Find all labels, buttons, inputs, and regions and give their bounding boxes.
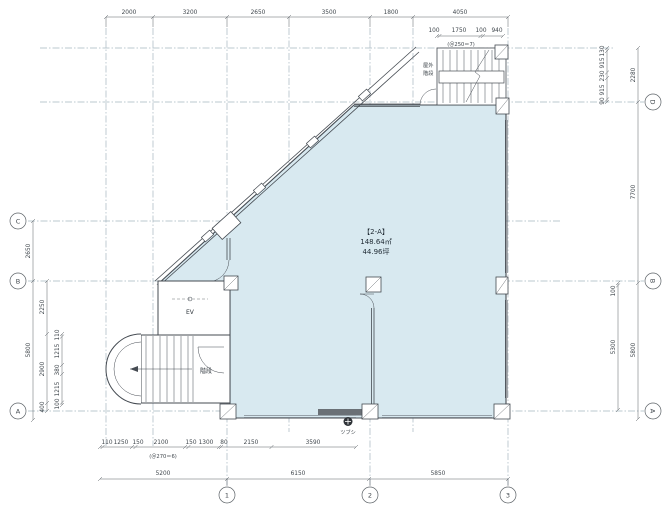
dim-left-mid [45,279,49,413]
dim-bottom-sub-4: 150 [185,440,196,446]
dim-right-inner-0: 100 [611,285,617,296]
axis-left-b-label: B [16,278,20,286]
floor-plan-svg: 【2-A】 148.64㎡ 44.96坪 EV 階段 屋外 階段 (＠250＝7… [0,0,669,514]
dim-left-mid-0: 2250 [40,299,46,314]
dim-top-sub-3: 940 [491,28,502,34]
dim-bottom-sub-8: 3590 [306,440,321,446]
dim-bottom-sub-7: 2150 [244,440,259,446]
stair-landing [439,71,504,83]
dim-bottom-sub-6: 80 [220,440,228,446]
dim-top-sub-2: 100 [475,28,486,34]
axis-bottom-2-label: 2 [368,492,372,500]
axis-right-d-label: D [649,99,657,104]
dim-right-outer-2: 5800 [631,342,637,357]
dim-bottom-sub-3: 2100 [154,440,169,446]
dim-left-small-0: 110 [55,329,61,340]
dim-top-main [104,15,510,27]
dim-left-mid-1: 2900 [40,361,46,376]
axis-left-a-label: A [16,408,21,416]
axis-right-d: D [645,94,661,110]
dim-top-2: 2650 [251,10,266,16]
axis-bottom-3: 3 [500,487,516,503]
dim-left-mid-2: 400 [40,401,46,412]
room-area-tsubo: 44.96坪 [362,248,389,256]
dim-right-outer-1: 7700 [631,184,637,199]
stairs-label: 階段 [200,367,212,375]
dim-left-small-2: 380 [55,364,61,375]
dim-bottom-sub-0: 110 [101,440,112,446]
dim-left-outer-1: 5800 [26,342,32,357]
dim-bottom-main-0: 5200 [156,471,171,477]
axis-right-b: B [645,273,661,289]
outdoor-stairs-label-1: 屋外 [423,61,433,69]
axis-right-a-label: A [649,409,657,414]
dim-left-outer-0: 2650 [26,243,32,258]
dim-top-5: 4050 [453,10,468,16]
axis-left-b: B [10,273,26,289]
tsubushi-label: ツブシ [340,428,356,436]
dim-top-sub-1: 1750 [452,28,467,34]
axis-bottom-3-label: 3 [506,492,510,500]
dim-right-outer-0: 2280 [631,67,637,82]
dim-left-small-1: 1215 [55,343,61,358]
floor-plan-canvas: 【2-A】 148.64㎡ 44.96坪 EV 階段 屋外 階段 (＠250＝7… [0,0,669,514]
axis-bottom-2: 2 [362,487,378,503]
axis-left-a: A [10,403,26,419]
axis-right-a: A [645,403,661,419]
outdoor-stairs-label-2: 階段 [423,69,433,77]
room-area-m2: 148.64㎡ [360,238,392,246]
bottom-stair-note: (＠270＝6) [149,453,177,460]
door-arc-outdoor-stair [420,89,436,105]
dim-right-small-2: 230 [600,70,606,81]
dim-bottom-main-2: 5850 [431,471,446,477]
dim-top-sub [435,34,505,38]
dim-bottom-main-1: 6150 [291,471,306,477]
dim-right-small-1: 915 [600,57,606,68]
dim-top-4: 1800 [384,10,399,16]
elevator-label: EV [186,309,195,316]
dim-top-sub-0: 100 [428,28,439,34]
axis-left-c: C [10,213,26,229]
axis-left-c-label: C [16,218,21,226]
dim-right-small-4: 90 [600,97,606,105]
axis-right-b-label: B [649,279,657,283]
dim-top-3: 3500 [322,10,337,16]
dim-left-small-3: 1215 [55,381,61,396]
dim-right-inner-1: 5300 [611,339,617,354]
dim-bottom-sub-1: 1250 [114,440,129,446]
dim-bottom-sub-5: 1300 [199,440,214,446]
top-stair-note: (＠250＝7) [447,41,475,48]
dim-right-small-0: 130 [600,45,606,56]
elevator-room [158,281,230,335]
axis-bottom-1: 1 [219,487,235,503]
dim-bottom-main [98,477,510,486]
axis-bottom-1-label: 1 [225,492,229,500]
dim-top-0: 2000 [122,10,137,16]
dim-top-1: 3200 [183,10,198,16]
dim-right-small-3: 915 [600,84,606,95]
dim-left-small-4: 100 [55,398,61,409]
dim-bottom-sub-2: 150 [132,440,143,446]
room-name: 【2-A】 [363,228,389,236]
solid-wall-band [318,409,362,416]
